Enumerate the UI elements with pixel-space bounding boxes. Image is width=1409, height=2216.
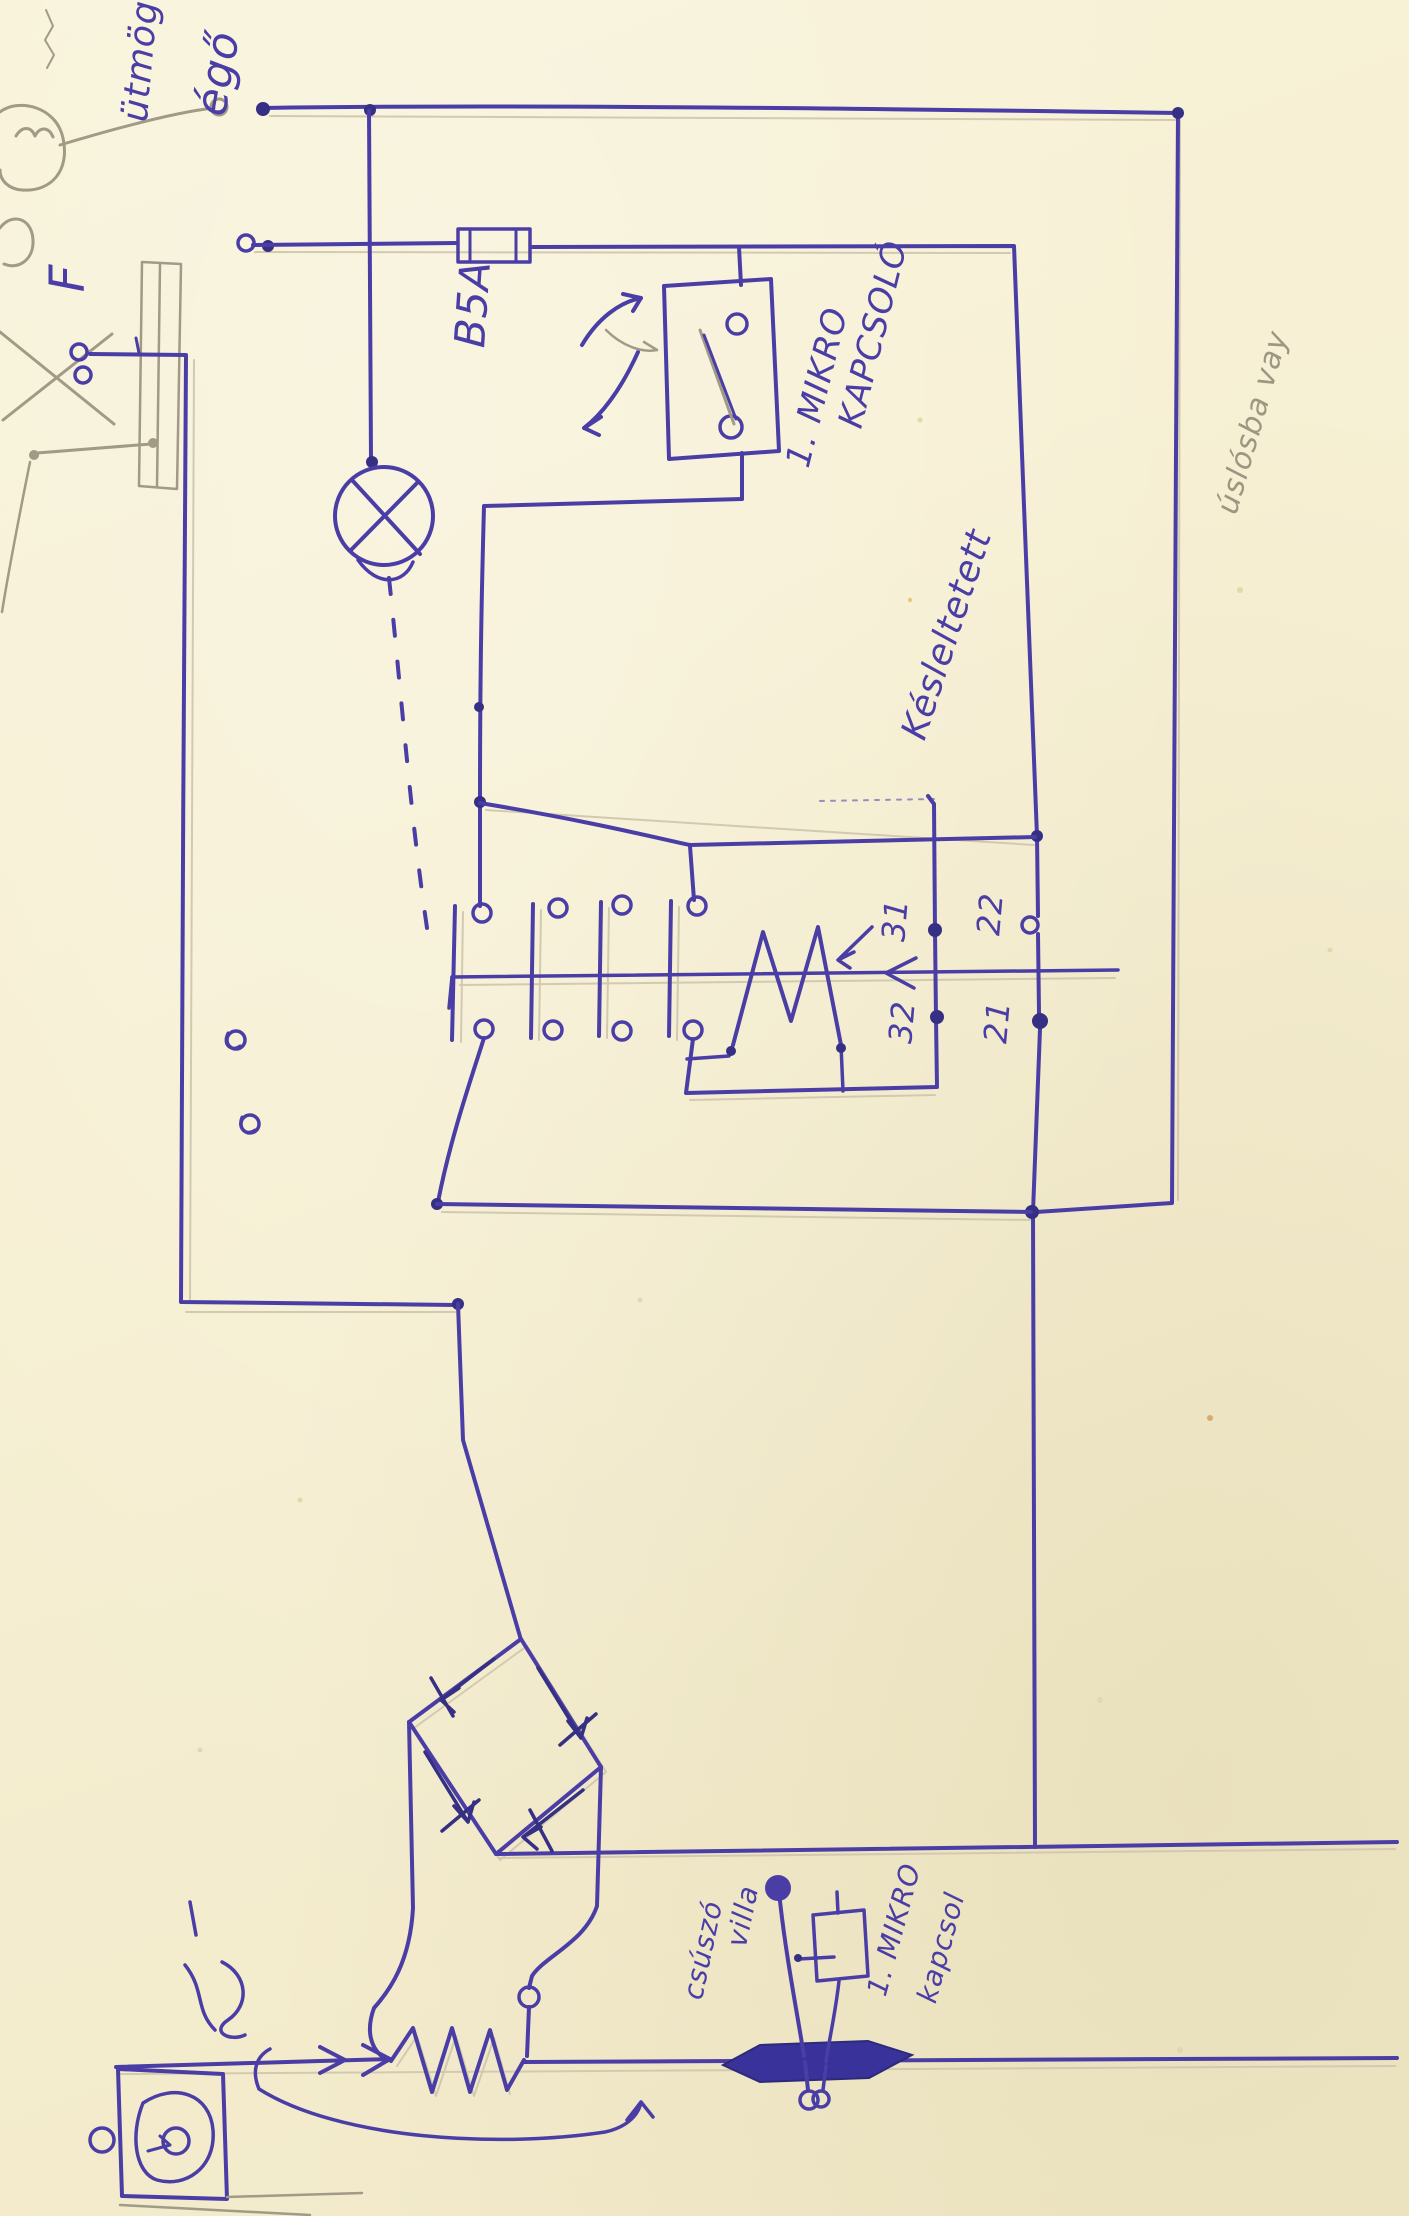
contact-top-3 [613,896,631,914]
switch-motion-arrow-pencil [606,330,657,351]
bottom-switch-label-line2: kapcsol [910,1889,971,2007]
resistor-tap-terminal [519,1987,539,2007]
handwriting-scribble-B [185,1902,245,2037]
wire-branch-to-right [480,803,1035,845]
switch-motion-arrow-up [582,294,641,345]
slider-dark-blob [723,2041,912,2082]
switch-housing [139,262,181,489]
contact-31-label: 31 [874,897,916,943]
wire-bridge-bottom-out [496,1842,1397,1854]
plug-prong-holes [16,129,53,138]
note-top-word1: ütmög [115,0,166,123]
switch-motion-arrow-down [584,352,638,435]
relay-contact-bank [449,896,1118,1040]
indicator-lamp [335,456,433,928]
contact-bar-2 [531,904,533,1038]
motor-pump-box [90,2069,362,2215]
coil-right-dot [836,1043,846,1053]
terminal-22-circle [1022,917,1038,933]
contact-top-2 [549,899,567,917]
pencil-tail-line [2,462,30,612]
fuse-caps [470,229,516,262]
blob-mid-drop [474,702,484,712]
lever-ball [765,1875,791,1901]
bottom-switch-pin-top [837,1892,838,1913]
contact-22-label: 22 [969,891,1011,937]
bridge-rectifier [409,1639,601,1854]
slider-label-line2: villa [720,1882,765,1950]
wire3-tick [136,338,139,353]
ghost-return-horizontal [442,1212,1030,1220]
wire2-fuse-to-bottom [531,246,1040,1847]
plug-face-circle [0,105,65,190]
terminal-32-dot [930,1010,944,1024]
ghost-bridge [414,1646,606,1860]
switch-blade [37,444,151,453]
contact-21-label: 21 [976,999,1018,1045]
paper-speckles [198,418,1333,2054]
terminal-31-dot [928,923,942,937]
slider-label-line1: csúszó [676,1898,729,2003]
dashed-tick-line [820,799,934,801]
scanned-schematic-page: ütmög égő F B5A 1. MIKRO KAPCSOLÓ Késlel… [0,0,1409,2216]
linkage-bar [452,970,1118,977]
fuse-cartridge [458,229,530,262]
wire-contact1-bottom-down [438,1038,484,1202]
ghost-linkage [460,978,1115,985]
diode-bottom-right [523,1790,583,1851]
ink-wiring [71,102,1397,2067]
note-top-word2: égő [185,27,250,120]
floating-terminals [226,1031,259,1133]
wire-drop-contact4 [690,846,694,900]
lamp-drop-wire [369,111,371,460]
wire-top-start-blob [256,102,270,116]
slide-wire-resistor [320,2028,524,2092]
contact-bottom-3 [613,1022,631,1040]
ghost-top-wire [270,116,1175,120]
contact-32-label: 32 [881,999,923,1045]
diode-top-left [431,1659,494,1716]
motor-left-terminal [90,2128,114,2152]
lamp-dashed-link [389,578,427,928]
motor-inner-shape [136,2093,213,2182]
feed-arrow-chevrons [320,2045,390,2075]
plug-cable-loop [0,219,33,266]
wire-return-horizontal [437,1204,1031,1212]
contact-bar-1 [452,906,455,1040]
wire-bridge-right-drop [527,1767,601,2056]
ms-contact-top [727,314,747,334]
sliding-contact-assembly [255,1875,912,2139]
lamp-cross [350,480,420,554]
contact-top-1 [473,904,491,922]
wire-top-corner-blob [1172,107,1184,119]
bottom-switch-contact-dot [794,1954,802,1962]
diode-top-right [538,1668,596,1745]
wire3-terminal-b [75,367,91,383]
delay-label: Késleltetett [894,524,1001,745]
switch-cross-lines [0,332,114,424]
schematic-drawing: ütmög égő F B5A 1. MIKRO KAPCSOLÓ Késlel… [0,0,1409,2216]
contact-bar-4 [669,901,671,1036]
bottom-switch-contact [799,1957,834,1959]
coil-action-arrow [838,927,872,968]
bottom-switch-body [813,1910,868,1981]
terminal-f-label: F [40,263,96,292]
pencil-note-label: úslósba vay [1210,327,1296,518]
ms-blade [704,335,736,419]
coil-zigzag-M [733,927,841,1045]
bridge-diamond [409,1639,601,1854]
wire2-to-fuse [253,243,457,245]
ghost-left-vertical [190,360,194,1300]
relay-coil [687,927,872,1091]
coil-left-dot [726,1046,736,1056]
annotations [185,294,934,2037]
fuse-rating-label: B5A [445,259,500,349]
contact-bottom-4 [684,1021,702,1039]
terminal-21-dot [1032,1013,1048,1029]
ghost-coil-bottom [690,1095,935,1100]
pencil-ghost-lines [120,116,1395,2096]
wire3-terminal-a [71,344,87,360]
switch-pin-terminal [813,2091,829,2107]
contact-bottom-1 [475,1020,493,1038]
contact-bar-3 [599,902,601,1036]
wire-to-bridge-top [458,1304,521,1640]
contact-top-4 [688,897,706,915]
contact-bottom-2 [544,1021,562,1039]
micro-switch-box [664,247,779,499]
pencil-scribble-corner [45,10,54,68]
wire2-start-terminal [238,235,254,251]
ms-blade-pencil [700,330,734,424]
wire-bridge-left-drop [370,1722,413,2058]
